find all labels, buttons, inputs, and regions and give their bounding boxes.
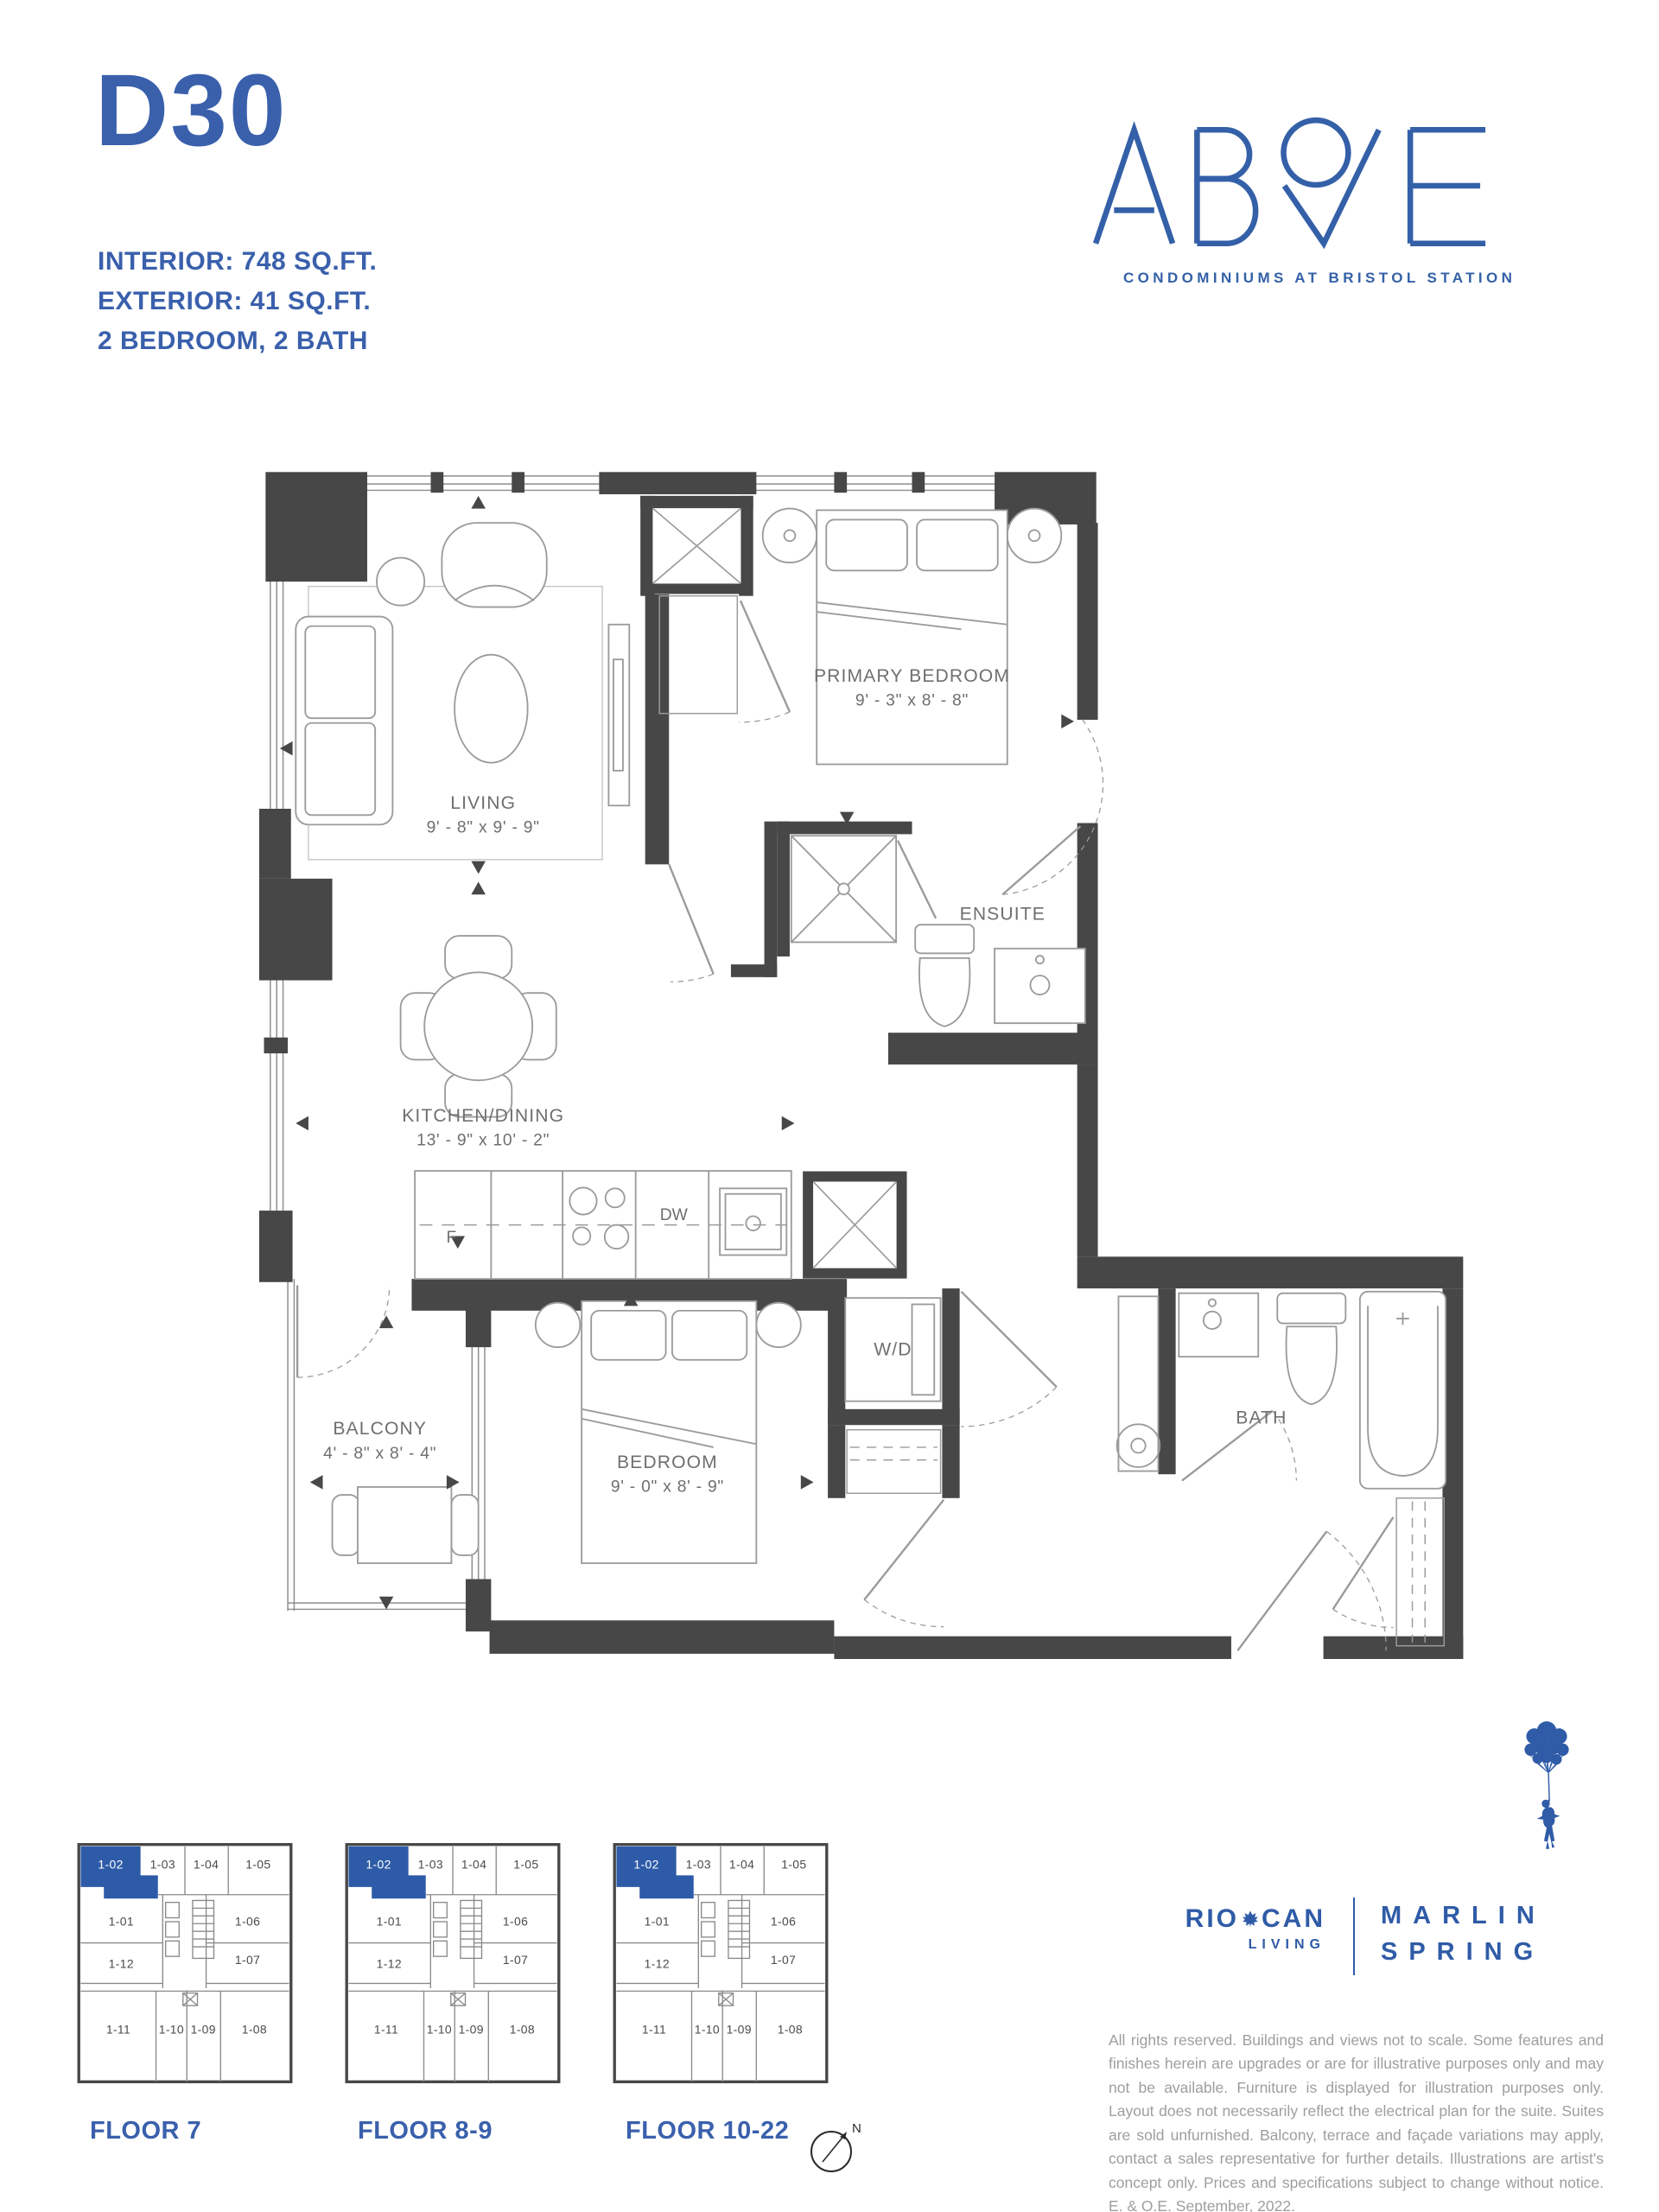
primary-closet [659, 596, 737, 714]
balcony-label: BALCONY [333, 1419, 427, 1439]
unit-1-09: 1-09 [459, 2022, 484, 2036]
entry-closet [1396, 1498, 1444, 1646]
floorplate: 1-02 1-03 1-04 1-05 1-01 1-06 1-12 1-07 … [71, 1839, 299, 2145]
floorplate: 1-02 1-03 1-04 1-05 1-01 1-06 1-12 1-07 … [607, 1839, 835, 2145]
ensuite-fixtures [791, 836, 1085, 1027]
unit-1-04: 1-04 [194, 1858, 219, 1872]
dishwasher-label: DW [660, 1206, 689, 1224]
marlin-line2: SPRING [1381, 1934, 1546, 1970]
unit-1-01: 1-01 [109, 1914, 134, 1928]
unit-1-11: 1-11 [106, 2022, 130, 2036]
legal-disclaimer: All rights reserved. Buildings and views… [1109, 2029, 1604, 2212]
floor-label: FLOOR 10-22 [607, 2117, 835, 2145]
unit-1-09: 1-09 [727, 2022, 752, 2036]
balcony-furniture [333, 1487, 479, 1563]
dining-furniture [401, 936, 556, 1117]
unit-1-09: 1-09 [191, 2022, 216, 2036]
kitchen-counter [415, 1171, 791, 1279]
living-dims: 9' - 8" x 9' - 9" [427, 819, 540, 837]
bedroom-dims: 9' - 0" x 8' - 9" [611, 1478, 724, 1496]
fridge-label: F [447, 1229, 457, 1247]
unit-1-07: 1-07 [771, 1953, 796, 1967]
wd-label: W/D [874, 1339, 912, 1359]
ensuite-label: ENSUITE [960, 905, 1046, 925]
unit-1-02: 1-02 [98, 1858, 123, 1872]
kitchen-label: KITCHEN/DINING [402, 1106, 564, 1126]
unit-1-11: 1-11 [642, 2022, 666, 2036]
floor-label: FLOOR 8-9 [339, 2117, 567, 2145]
unit-1-10: 1-10 [427, 2022, 452, 2036]
spec-config: 2 BEDROOM, 2 BATH [98, 321, 377, 361]
unit-1-01: 1-01 [645, 1914, 670, 1928]
unit-1-01: 1-01 [377, 1914, 402, 1928]
marlin-line1: MARLIN [1381, 1897, 1546, 1934]
unit-1-12: 1-12 [645, 1957, 670, 1971]
bedroom-label: BEDROOM [617, 1452, 718, 1472]
logo-divider [1353, 1897, 1355, 1975]
spec-exterior: EXTERIOR: 41 SQ.FT. [98, 282, 377, 321]
unit-1-12: 1-12 [377, 1957, 402, 1971]
page-title: D30 [95, 52, 287, 169]
unit-1-06: 1-06 [235, 1914, 260, 1928]
unit-1-12: 1-12 [109, 1957, 134, 1971]
bath-label: BATH [1236, 1408, 1287, 1427]
unit-1-04: 1-04 [461, 1858, 486, 1872]
balloon-girl-illustration [1519, 1718, 1574, 1859]
bedroom-furniture [536, 1301, 801, 1563]
unit-1-05: 1-05 [781, 1858, 806, 1872]
floorplate: 1-02 1-03 1-04 1-05 1-01 1-06 1-12 1-07 … [339, 1839, 567, 2145]
unit-1-11: 1-11 [374, 2022, 398, 2036]
marlin-spring-logo: MARLIN SPRING [1381, 1897, 1546, 1970]
floorplate-diagram: 1-02 1-03 1-04 1-05 1-01 1-06 1-12 1-07 … [71, 1839, 299, 2088]
unit-1-10: 1-10 [159, 2022, 184, 2036]
riocan-right: CAN [1262, 1904, 1325, 1934]
primary-bedroom-furniture [763, 509, 1062, 765]
kitchen-dims: 13' - 9" x 10' - 2" [416, 1132, 550, 1150]
above-logo [1090, 112, 1554, 264]
balcony-dims: 4' - 8" x 8' - 4" [323, 1445, 436, 1463]
unit-1-10: 1-10 [695, 2022, 720, 2036]
floorplan: LIVING 9' - 8" x 9' - 9" PRIMARY BEDROOM… [259, 449, 1486, 1659]
unit-1-03: 1-03 [686, 1858, 711, 1872]
compass-icon: N [802, 2113, 871, 2183]
unit-1-06: 1-06 [771, 1914, 796, 1928]
riocan-left: RIO [1185, 1904, 1239, 1934]
unit-1-07: 1-07 [235, 1953, 260, 1967]
compass-north-label: N [852, 2121, 861, 2136]
unit-1-03: 1-03 [150, 1858, 175, 1872]
living-label: LIVING [450, 793, 516, 813]
floorplates-row: 1-02 1-03 1-04 1-05 1-01 1-06 1-12 1-07 … [71, 1839, 835, 2145]
primary-dims: 9' - 3" x 8' - 8" [855, 692, 969, 710]
primary-label: PRIMARY BEDROOM [814, 666, 1010, 686]
unit-1-02: 1-02 [633, 1858, 658, 1872]
above-logo-mark [1090, 112, 1554, 259]
unit-specs: INTERIOR: 748 SQ.FT. EXTERIOR: 41 SQ.FT.… [98, 242, 377, 361]
riocan-logo: RIO CAN LIVING [1165, 1904, 1325, 1953]
unit-1-08: 1-08 [778, 2022, 803, 2036]
floorplate-diagram: 1-02 1-03 1-04 1-05 1-01 1-06 1-12 1-07 … [607, 1839, 835, 2088]
unit-1-07: 1-07 [503, 1953, 528, 1967]
spec-interior: INTERIOR: 748 SQ.FT. [98, 242, 377, 282]
unit-1-03: 1-03 [418, 1858, 443, 1872]
unit-1-05: 1-05 [513, 1858, 538, 1872]
brand-tagline: CONDOMINIUMS AT BRISTOL STATION [1123, 270, 1555, 287]
brochure-page: D30 INTERIOR: 748 SQ.FT. EXTERIOR: 41 SQ… [0, 0, 1659, 2212]
unit-1-02: 1-02 [365, 1858, 391, 1872]
riocan-sub: LIVING [1165, 1937, 1325, 1953]
floor-label: FLOOR 7 [71, 2117, 299, 2145]
unit-1-08: 1-08 [510, 2022, 535, 2036]
unit-1-06: 1-06 [503, 1914, 528, 1928]
unit-1-05: 1-05 [245, 1858, 270, 1872]
floorplate-diagram: 1-02 1-03 1-04 1-05 1-01 1-06 1-12 1-07 … [339, 1839, 567, 2088]
unit-1-08: 1-08 [242, 2022, 267, 2036]
unit-1-04: 1-04 [729, 1858, 754, 1872]
maple-leaf-icon [1243, 1910, 1258, 1928]
laundry-closet [845, 1298, 940, 1493]
